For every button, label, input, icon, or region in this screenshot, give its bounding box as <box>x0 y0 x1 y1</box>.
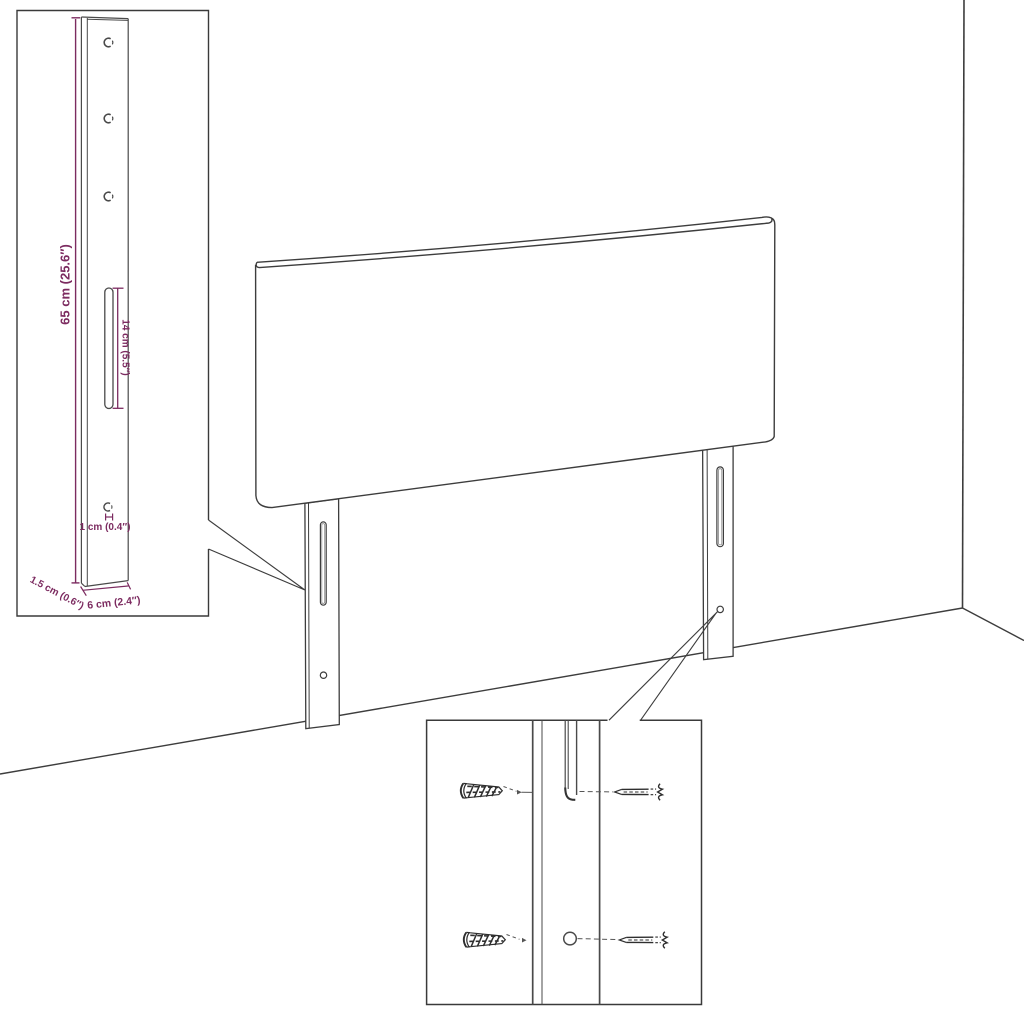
svg-text:14 cm (5.5″): 14 cm (5.5″) <box>120 319 131 375</box>
svg-text:65 cm (25.6″): 65 cm (25.6″) <box>58 244 73 325</box>
svg-text:1 cm (0.4″): 1 cm (0.4″) <box>80 522 131 533</box>
svg-text:6 cm (2.4″): 6 cm (2.4″) <box>87 594 141 612</box>
svg-text:1.5 cm (0.6″): 1.5 cm (0.6″) <box>28 575 85 613</box>
